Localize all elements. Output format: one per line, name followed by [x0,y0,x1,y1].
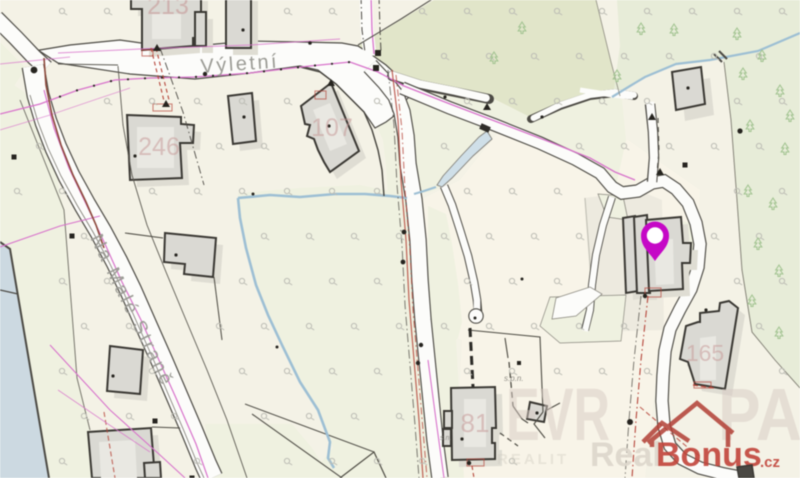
svg-text:REALIT: REALIT [497,451,569,468]
svg-text:107: 107 [311,114,353,142]
svg-text:165: 165 [686,340,724,366]
svg-text:81: 81 [461,408,490,438]
svg-text:s.n.: s.n. [440,435,451,442]
svg-text:213: 213 [147,0,189,20]
svg-text:Real: Real [590,436,662,474]
svg-text:246: 246 [138,133,180,161]
svg-text:.cz: .cz [760,454,780,471]
